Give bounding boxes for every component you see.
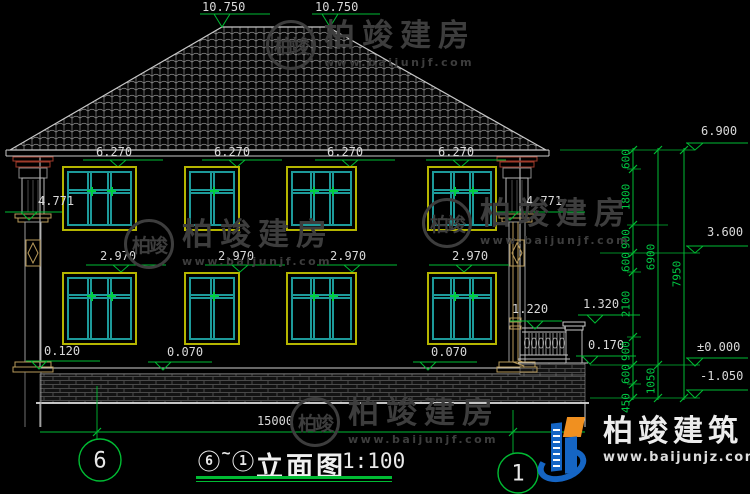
chain-plinth-total: 1050 [645, 368, 658, 395]
title-axis-end: 1 [233, 451, 253, 471]
mullion [87, 173, 92, 224]
elev-ground: ±0.000 [697, 341, 740, 353]
drawing-scale: 1:100 [342, 449, 405, 473]
cross-tick [469, 190, 478, 192]
cross-tick [107, 190, 116, 192]
elev-floor-mid: 0.070 [167, 346, 203, 358]
watermark: 柏竣 柏竣建房 www.baijunjf.com [422, 198, 632, 248]
watermark-text: 柏竣建房 [182, 219, 334, 252]
watermark: 柏竣 柏竣建房 www.baijunjf.com [266, 20, 476, 70]
title-axis-start: 6 [199, 451, 219, 471]
chain-overall: 7950 [671, 261, 684, 288]
elev-lower-window-4: 2.970 [452, 250, 488, 262]
elev-porch-rail: 1.220 [512, 303, 548, 315]
watermark-logo-icon: 柏竣 [422, 198, 472, 248]
transom [434, 189, 490, 194]
cross-tick [450, 190, 459, 192]
watermark-url: www.baijunjf.com [480, 234, 632, 247]
title-tilde: ~ [221, 444, 230, 462]
cross-tick [329, 190, 338, 192]
porch-balustrade [518, 322, 588, 363]
cross-tick [450, 295, 459, 297]
chain-seg-2100: 2100 [620, 291, 633, 318]
cross-tick [329, 295, 338, 297]
title-underline [196, 476, 392, 479]
cross-tick [210, 190, 219, 192]
grid-bubble-left: 6 [93, 449, 106, 474]
chain-seg-450: 450 [620, 393, 633, 413]
brand-url: www.baijunjz.com [603, 450, 750, 465]
mullion [107, 173, 112, 224]
chain-seg-600c: 600 [620, 364, 633, 384]
title-underline-thin [196, 481, 392, 482]
transom [293, 294, 350, 299]
chain-upper-total: 6900 [645, 244, 658, 271]
brand-name: 柏竣建筑 [603, 415, 750, 448]
elev-capital-left: 4.771 [38, 195, 74, 207]
watermark: 柏竣 柏竣建房 www.baijunjf.com [124, 219, 334, 269]
window-sash [67, 277, 132, 340]
elev-eave: 6.900 [701, 125, 737, 137]
elev-porch-post: 1.320 [583, 298, 619, 310]
window-lower-2 [184, 272, 240, 345]
brand-logo: 柏竣建筑 www.baijunjz.com [537, 415, 750, 487]
watermark-logo-icon: 柏竣 [266, 20, 316, 70]
watermark-text: 柏竣建房 [348, 397, 500, 430]
porch-post [566, 330, 582, 363]
mullion [310, 279, 315, 338]
elev-floor-left: 0.120 [44, 345, 80, 357]
cross-tick [107, 295, 116, 297]
transom [69, 189, 130, 194]
elev-footing: -1.050 [700, 370, 743, 382]
window-sash [189, 277, 235, 340]
transom [293, 189, 350, 194]
transom [69, 294, 130, 299]
elev-floor-right: 0.070 [431, 346, 467, 358]
window-sash [291, 277, 352, 340]
width-dimension: 15000 [257, 415, 293, 427]
elevation-drawing: 10.750 10.750 6.270 6.270 6.270 6.270 2.… [0, 0, 750, 494]
elev-upper-window-4: 6.270 [438, 146, 474, 158]
cross-tick [310, 295, 319, 297]
mullion [210, 279, 215, 338]
cross-tick [469, 295, 478, 297]
transom [434, 294, 490, 299]
mullion [107, 279, 112, 338]
mullion [469, 279, 474, 338]
watermark-url: www.baijunjf.com [182, 255, 334, 268]
elev-ridge-right: 10.750 [315, 1, 358, 13]
chain-seg-900b: 900 [620, 341, 633, 361]
cross-tick [87, 295, 96, 297]
grid-bubble-right: 1 [511, 462, 524, 487]
watermark: 柏竣 柏竣建房 www.baijunjf.com [290, 397, 500, 447]
elev-upper-window-2: 6.270 [214, 146, 250, 158]
elev-upper-window-1: 6.270 [96, 146, 132, 158]
watermark-text: 柏竣建房 [480, 198, 632, 231]
elev-upper-window-3: 6.270 [327, 146, 363, 158]
chain-seg-600a: 600 [620, 149, 633, 169]
watermark-logo-icon: 柏竣 [290, 397, 340, 447]
window-sash [432, 277, 492, 340]
mullion [329, 279, 334, 338]
chain-seg-600b: 600 [620, 252, 633, 272]
marker-ridge-left [200, 14, 270, 27]
elev-ridge-left: 10.750 [202, 1, 245, 13]
mullion [450, 279, 455, 338]
cross-tick [87, 190, 96, 192]
watermark-logo-icon: 柏竣 [124, 219, 174, 269]
window-lower-1 [62, 272, 137, 345]
cross-tick [210, 295, 219, 297]
building-logo-icon [537, 415, 595, 487]
elev-storey: 3.600 [707, 226, 743, 238]
mullion [87, 279, 92, 338]
cross-tick [310, 190, 319, 192]
watermark-url: www.baijunjf.com [348, 433, 500, 446]
window-sash [67, 171, 132, 226]
window-lower-4 [427, 272, 497, 345]
watermark-url: www.baijunjf.com [324, 56, 476, 69]
elev-lower-window-3: 2.970 [330, 250, 366, 262]
watermark-text: 柏竣建房 [324, 20, 476, 53]
window-lower-3 [286, 272, 357, 345]
